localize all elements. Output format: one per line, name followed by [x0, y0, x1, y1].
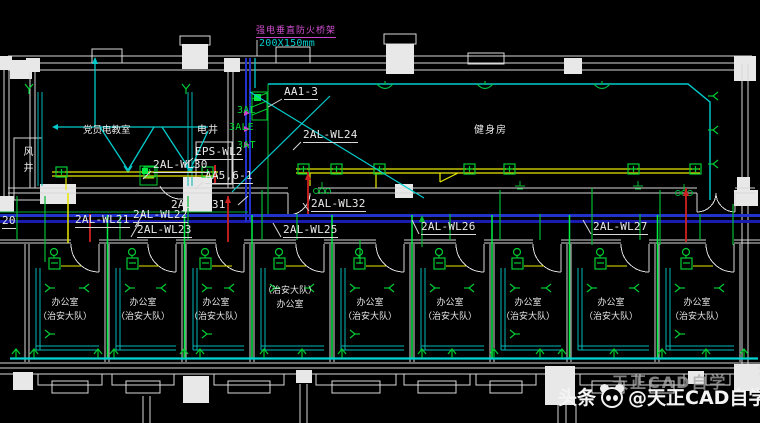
office-room-label: 办公室 （治安大队） — [490, 296, 566, 324]
label-2al-wl22: 2AL-WL22 — [133, 209, 188, 223]
office-label-line1: 办公室 — [178, 296, 254, 310]
watermark: 头条 @天正CAD自学 — [558, 383, 760, 410]
office-label-line2: 办公室 — [252, 298, 328, 312]
office-label-line2: （治安大队） — [412, 310, 488, 324]
office-room-label: 办公室 （治安大队） — [412, 296, 488, 324]
office-room-label: （治安大队） 办公室 — [252, 284, 328, 312]
label-2al-wl32: 2AL-WL32 — [311, 198, 366, 212]
label-gym: 健身房 — [474, 125, 507, 137]
floor-plan-drawing — [0, 0, 760, 423]
gym-lighting-circuit — [296, 164, 701, 196]
cad-floor-plan: 强电垂直防火桥架 200X150mm AA1-3 3AL 3ALE 3AT 电井… — [0, 0, 760, 423]
corridor-walls — [8, 186, 755, 215]
label-2al-wl27: 2AL-WL27 — [593, 221, 648, 235]
label-2al-wl25: 2AL-WL25 — [283, 224, 338, 238]
cable-tray-note: 强电垂直防火桥架 — [256, 25, 336, 38]
top-exterior-wall — [8, 34, 756, 81]
office-label-line1: 办公室 — [412, 296, 488, 310]
office-label-line1: 办公室 — [659, 296, 735, 310]
office-label-line1: 办公室 — [490, 296, 566, 310]
label-2al-wl30: 2AL-WL30 — [153, 159, 208, 173]
watermark-handle: @天正CAD自学 — [628, 383, 760, 410]
office-room-label: 办公室 （治安大队） — [659, 296, 735, 324]
label-2al-wl24: 2AL-WL24 — [303, 129, 358, 143]
right-exterior-wall — [734, 64, 760, 390]
office-label-line2: （治安大队） — [490, 310, 566, 324]
gym-double-door — [697, 193, 735, 212]
office-room-label: 办公室 （治安大队） — [178, 296, 254, 324]
office-label-line1: （治安大队） — [252, 284, 328, 298]
office-label-line2: （治安大队） — [332, 310, 408, 324]
label-3ale: 3ALE — [229, 122, 254, 134]
office-door-arcs — [71, 244, 734, 272]
office-label-line1: 办公室 — [332, 296, 408, 310]
office-label-line1: 办公室 — [573, 296, 649, 310]
office-door-leaves — [99, 244, 734, 272]
label-aa5-6-1: AA5,6-1 — [205, 170, 253, 184]
watermark-prefix: 头条 — [558, 383, 596, 410]
office-label-line1: 办公室 — [27, 296, 103, 310]
branch-circuits — [0, 172, 733, 358]
label-2al-wl20-partial: 20 — [2, 215, 16, 229]
label-party-room: 党员电教室 — [83, 125, 131, 137]
label-2al-wl23: 2AL-WL23 — [137, 224, 192, 238]
label-2al-wl26: 2AL-WL26 — [421, 221, 476, 235]
feeder-diagonals — [232, 92, 424, 198]
cable-tray-size: 200X150mm — [259, 38, 315, 50]
office-label-line2: （治安大队） — [178, 310, 254, 324]
office-label-line2: （治安大队） — [659, 310, 735, 324]
office-room-label: 办公室 （治安大队） — [573, 296, 649, 324]
panda-logo-icon — [599, 384, 625, 410]
label-aa1-3: AA1-3 — [284, 86, 318, 100]
office-room-label: 办公室 （治安大队） — [105, 296, 181, 324]
label-electrical-shaft: 电井 — [197, 125, 219, 137]
label-2al-wl21: 2AL-WL21 — [75, 214, 130, 228]
office-room-label: 办公室 （治安大队） — [332, 296, 408, 324]
gym-door-arc — [288, 193, 310, 215]
label-wind-shaft: 风井 — [20, 146, 32, 178]
office-label-line2: （治安大队） — [27, 310, 103, 324]
office-label-line2: （治安大队） — [573, 310, 649, 324]
label-3al: 3AL — [237, 105, 256, 117]
office-room-label: 办公室 （治安大队） — [27, 296, 103, 324]
office-label-line1: 办公室 — [105, 296, 181, 310]
office-label-line2: （治安大队） — [105, 310, 181, 324]
